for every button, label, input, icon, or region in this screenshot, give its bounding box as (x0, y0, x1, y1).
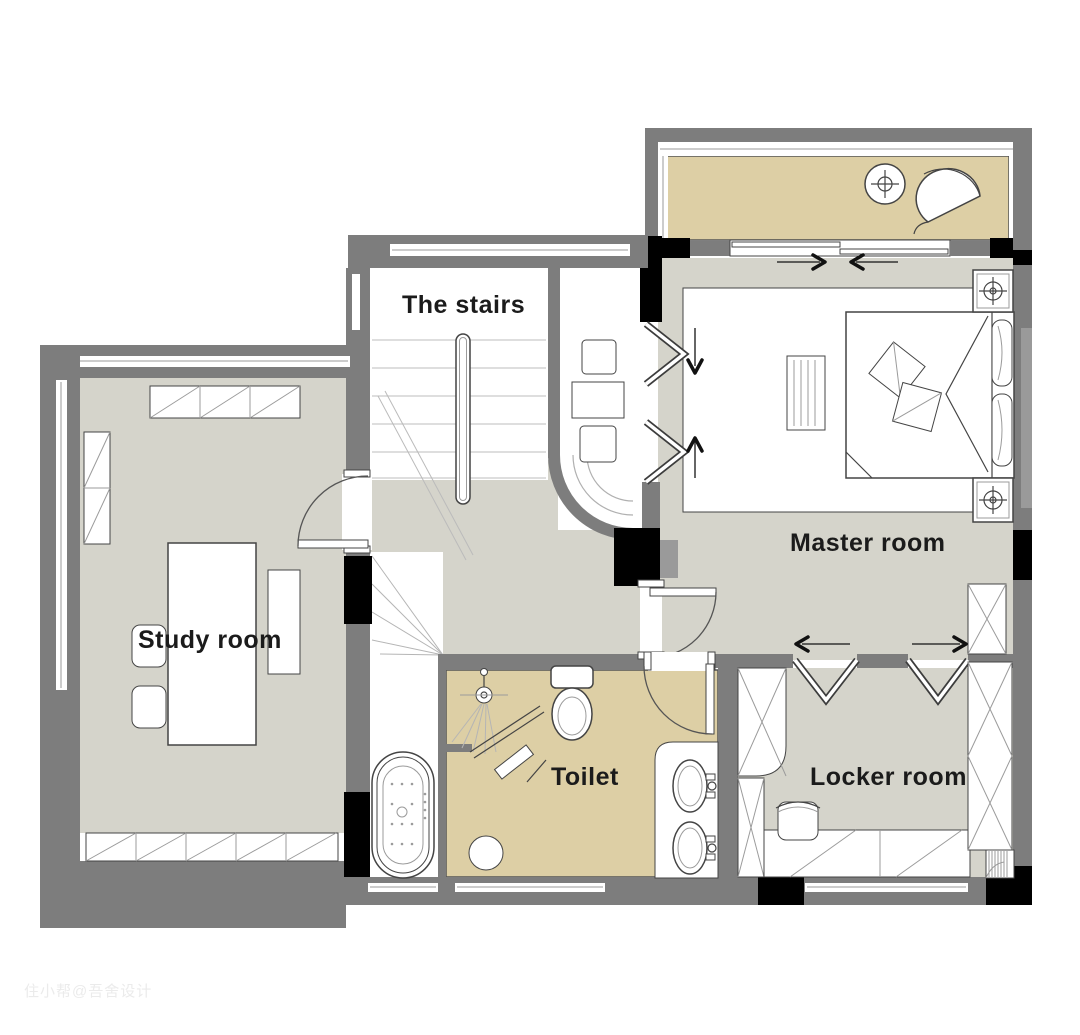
room-label-study: Study room (138, 626, 282, 655)
toilet-bowl-icon (551, 666, 593, 740)
column (344, 556, 372, 624)
roller-blind-icon (986, 850, 1014, 878)
chair (132, 686, 166, 728)
bathtub-icon (372, 752, 434, 878)
room-label-locker: Locker room (810, 763, 967, 792)
floor-plan: The stairs Master room Study room Toilet… (0, 0, 1080, 1035)
double-basin-counter (655, 742, 718, 878)
column (1013, 250, 1032, 265)
window-seat-cabinet (86, 833, 338, 861)
column (758, 877, 804, 905)
floor-plan-drawing (0, 0, 1080, 1035)
column (986, 877, 1032, 905)
nightstand-icon (973, 270, 1013, 312)
floor-stool (469, 836, 503, 870)
wardrobe-right (968, 662, 1012, 850)
column (614, 528, 660, 586)
tv-bench-icon (787, 356, 825, 430)
door-leaf (706, 664, 714, 734)
column (1013, 530, 1032, 580)
side-table-icon (865, 164, 905, 204)
door-leaf (298, 540, 368, 548)
wall-cabinet (84, 432, 110, 544)
top-shelf-cabinet (150, 386, 300, 418)
shower-stub-wall (438, 744, 472, 752)
nightstand-icon (973, 478, 1013, 522)
watermark: 住小帮@吾舍设计 (24, 980, 152, 1001)
double-bed-icon (846, 312, 1014, 478)
stool-icon (776, 802, 820, 840)
room-label-toilet: Toilet (551, 763, 619, 792)
room-label-stairs: The stairs (402, 291, 525, 320)
door-leaf (650, 588, 716, 596)
room-label-master: Master room (790, 529, 946, 558)
handrail-icon (456, 334, 470, 504)
winder-area (370, 552, 443, 654)
side-table (268, 570, 300, 674)
sliding-door (730, 240, 950, 256)
